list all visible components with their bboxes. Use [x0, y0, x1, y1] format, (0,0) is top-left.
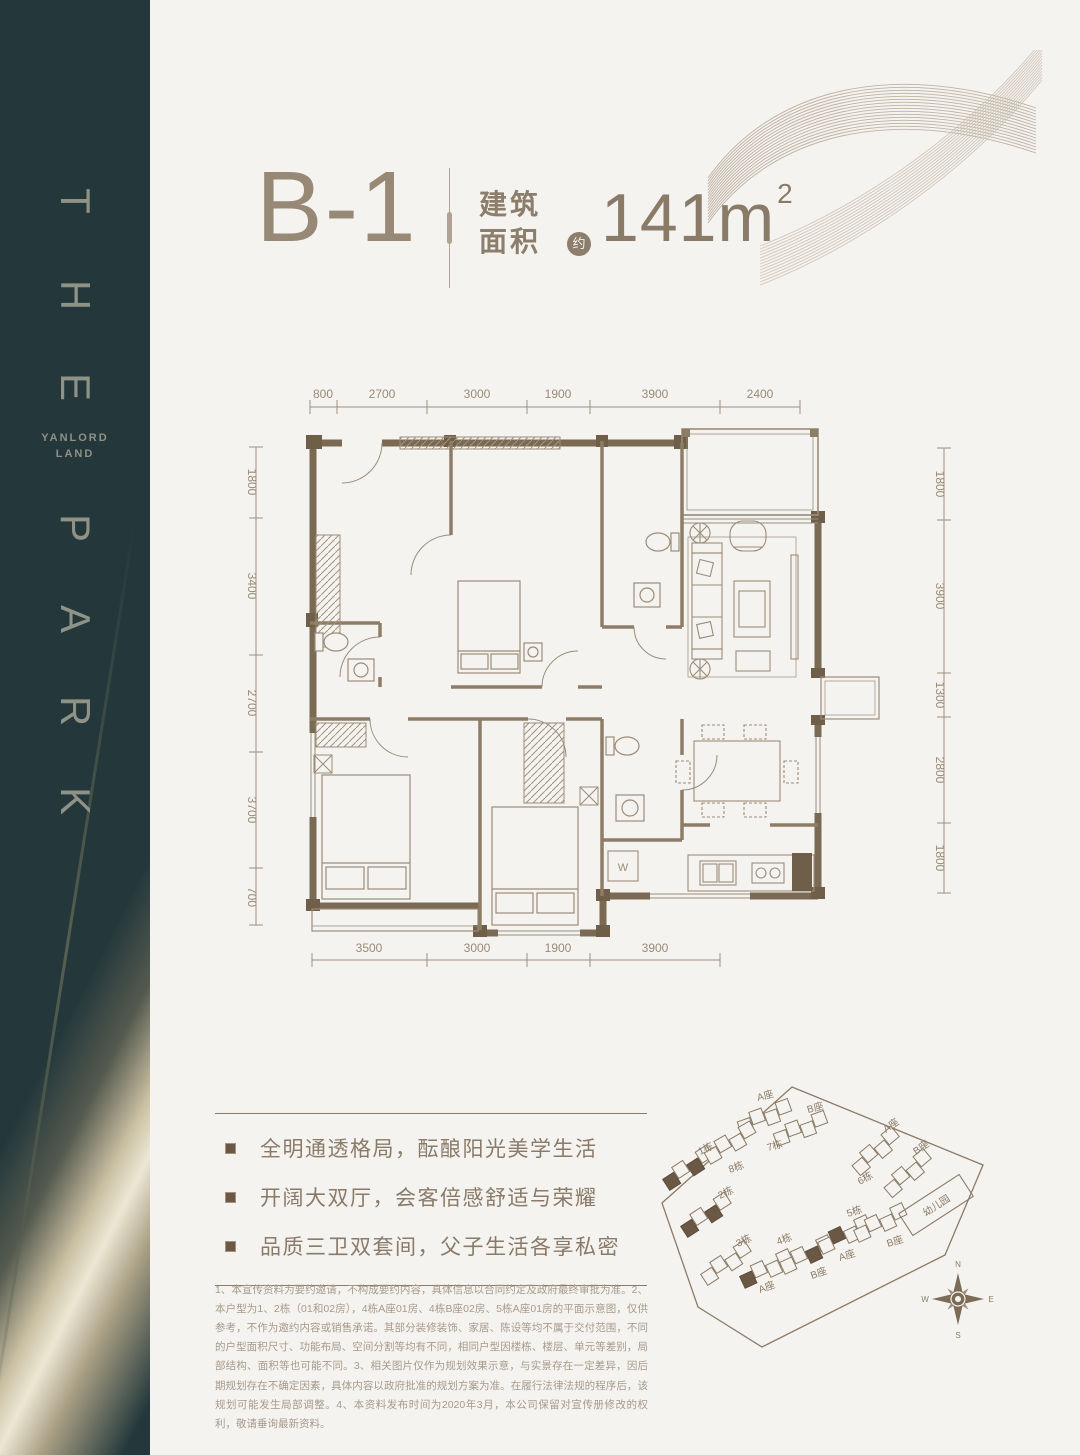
sofa-icon [692, 543, 722, 659]
site-plan: 1栋 2栋 3栋 4栋 A座 B座 5栋 A座 B座 6栋 A座 B座 7栋 A… [650, 1075, 1030, 1375]
divider-line-top [215, 1113, 647, 1114]
rug-outline [688, 537, 796, 677]
dim-bottom-2: 1900 [545, 941, 572, 955]
cabinet-icon [792, 853, 812, 891]
compass-s-label: S [955, 1331, 960, 1340]
balcony [682, 429, 818, 515]
toilet-icon [315, 633, 348, 651]
building-cluster [881, 1148, 935, 1198]
area-label-line2: 面积 [479, 223, 541, 260]
toilet-icon [606, 737, 639, 755]
armchair-icon [730, 521, 766, 551]
coffee-table-icon [734, 581, 770, 637]
dim-right-4: 1800 [933, 845, 947, 872]
selling-point-text: 全明通透格局，酝酿阳光美学生活 [260, 1133, 598, 1163]
sink-icon [634, 583, 660, 607]
dim-left-3: 3700 [245, 797, 259, 824]
master-wardrobe-icon [316, 723, 366, 747]
dim-top-5: 2400 [747, 387, 774, 401]
header-divider [449, 168, 450, 288]
kitchen-sink-icon [700, 861, 736, 885]
ac-unit-icon [580, 787, 598, 805]
selling-point-text: 品质三卫双套间，父子生活各享私密 [260, 1231, 620, 1261]
compass-n-label: N [955, 1260, 961, 1269]
tv-console-icon [791, 555, 798, 659]
selling-point-row: 品质三卫双套间，父子生活各享私密 [225, 1231, 647, 1261]
dim-top-2: 3000 [464, 387, 491, 401]
block-label: B座 [885, 1232, 905, 1250]
building-label: 4栋 [775, 1230, 794, 1248]
dim-left-1: 3400 [245, 573, 259, 600]
block-label: A座 [837, 1246, 857, 1264]
disclaimer-text: 1、本宣传资料为要约邀请，不构成要约内容，具体信息以合同约定及政府最终审批为准。… [215, 1281, 648, 1434]
kitchen-icons: W [608, 851, 814, 891]
stove-icon [752, 863, 784, 883]
brand-sidebar: T H E YANLORD LAND P A R K [0, 0, 150, 1455]
dim-bottom-1: 3000 [464, 941, 491, 955]
dimension-lines [249, 400, 951, 967]
dim-top-0: 800 [313, 387, 333, 401]
sink-icon [348, 659, 374, 681]
sink-icon [616, 795, 644, 821]
dim-right-2: 1300 [933, 682, 947, 709]
area-label: 建筑 面积 [479, 186, 541, 260]
wave-band-lower [760, 50, 1042, 285]
wave-band-upper [708, 84, 1036, 223]
building-label: 7栋 [765, 1137, 783, 1154]
living-room-icons [688, 521, 798, 679]
master-bed-icon [322, 775, 410, 899]
compass-w-label: W [921, 1295, 929, 1304]
floor-plan: 800 2700 3000 1900 3900 2400 3500 3000 1… [230, 385, 970, 995]
kindergarten: 幼儿园 [899, 1174, 974, 1235]
dim-top-4: 3900 [642, 387, 669, 401]
block-label: A座 [757, 1278, 777, 1296]
bedroom3-wardrobe-icon [524, 723, 564, 803]
dim-right-1: 3900 [933, 583, 947, 610]
toilet-icon [646, 533, 679, 551]
selling-points: 全明通透格局，酝酿阳光美学生活 开阔大双厅，会客倍感舒适与荣耀 品质三卫双套间，… [215, 1113, 647, 1286]
bullet-square-icon [225, 1241, 236, 1252]
washer-label: W [618, 862, 629, 874]
selling-point-row: 全明通透格局，酝酿阳光美学生活 [225, 1133, 647, 1163]
bullet-square-icon [225, 1192, 236, 1203]
windows [309, 437, 822, 937]
side-table-icon [736, 651, 770, 671]
bay-window [821, 677, 879, 719]
dim-left-0: 1800 [245, 469, 259, 496]
floor-lamp-icon [690, 523, 710, 543]
exterior-walls [310, 440, 818, 933]
block-label: B座 [809, 1264, 829, 1282]
building-label: 8栋 [727, 1158, 746, 1176]
bed-icon [458, 581, 542, 673]
dim-right-0: 1800 [933, 471, 947, 498]
kindergarten-label: 幼儿园 [920, 1192, 952, 1219]
selling-point-text: 开阔大双厅，会客倍感舒适与荣耀 [260, 1182, 598, 1212]
dim-bottom-0: 3500 [356, 941, 383, 955]
wave-decoration-graphic [700, 50, 1050, 295]
bullet-square-icon [225, 1143, 236, 1154]
washing-machine-icon: W [608, 851, 638, 881]
selling-point-row: 开阔大双厅，会客倍感舒适与荣耀 [225, 1182, 647, 1212]
dim-top-1: 2700 [369, 387, 396, 401]
block-label: A座 [755, 1087, 774, 1104]
brochure-page: T H E YANLORD LAND P A R K B-1 建筑 面积 约 1… [0, 0, 1080, 1455]
vertical-letter: K [51, 727, 99, 877]
bed-icon [492, 807, 578, 925]
area-label-line1: 建筑 [479, 186, 541, 223]
bathroom-icons [315, 533, 679, 821]
compass-e-label: E [988, 1295, 993, 1304]
dining-set-icon [676, 725, 798, 817]
logo-line1: YANLORD [0, 430, 150, 446]
dim-bottom-3: 3900 [642, 941, 669, 955]
unit-title: B-1 [256, 150, 418, 265]
dim-left-2: 2700 [245, 690, 259, 717]
building-cluster [849, 1126, 903, 1176]
dim-left-4: 700 [245, 887, 259, 907]
entry-closet-icon [316, 535, 340, 647]
approx-badge: 约 [567, 232, 591, 256]
floor-lamp-icon [690, 659, 710, 679]
dim-top-3: 1900 [545, 387, 572, 401]
compass-rose-icon: N E S W [921, 1260, 993, 1340]
dim-right-3: 2800 [933, 757, 947, 784]
